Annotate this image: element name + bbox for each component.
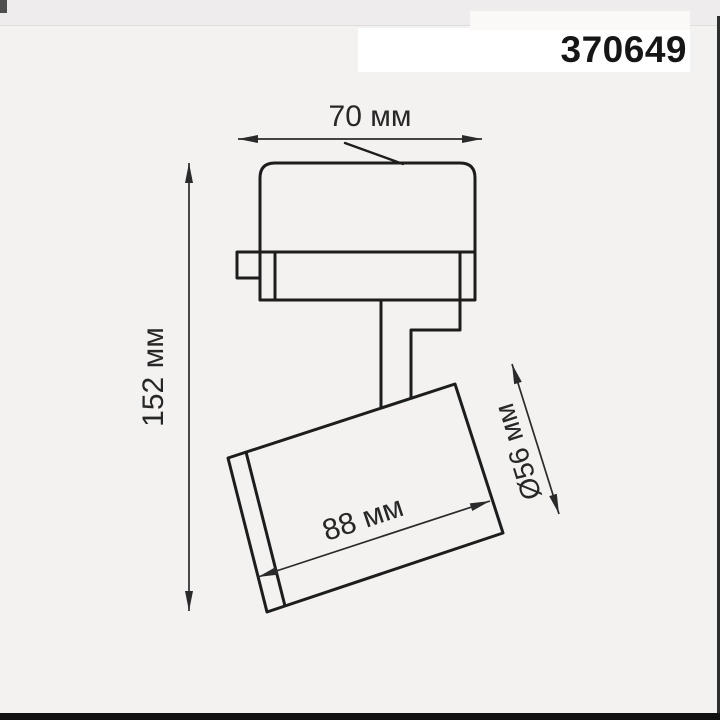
head-length-dimension-label: 88 мм <box>318 490 407 548</box>
spotlight-head <box>228 384 503 612</box>
photo-bottom-bar <box>0 713 720 720</box>
adapter-housing <box>260 163 475 300</box>
adapter-lock-lever <box>345 143 403 164</box>
width-dimension: 70 мм <box>238 100 482 139</box>
track-adapter-body <box>237 143 475 300</box>
spotlight-dimension-drawing: 70 мм 152 мм 88 мм <box>0 0 720 720</box>
spotlight-back-cap-line <box>246 452 285 606</box>
head-length-dimension: 88 мм <box>258 490 490 577</box>
swivel-stem <box>381 300 460 407</box>
head-diameter-dimension: Ø56 мм <box>488 364 559 514</box>
spotlight-head-outline <box>228 384 503 612</box>
height-dimension-label: 152 мм <box>137 327 170 427</box>
width-dimension-label: 70 мм <box>329 100 412 133</box>
track-contact-tab <box>237 252 260 278</box>
height-dimension: 152 мм <box>137 163 189 611</box>
product-dimension-image: 370649 70 мм 152 мм <box>0 0 720 720</box>
